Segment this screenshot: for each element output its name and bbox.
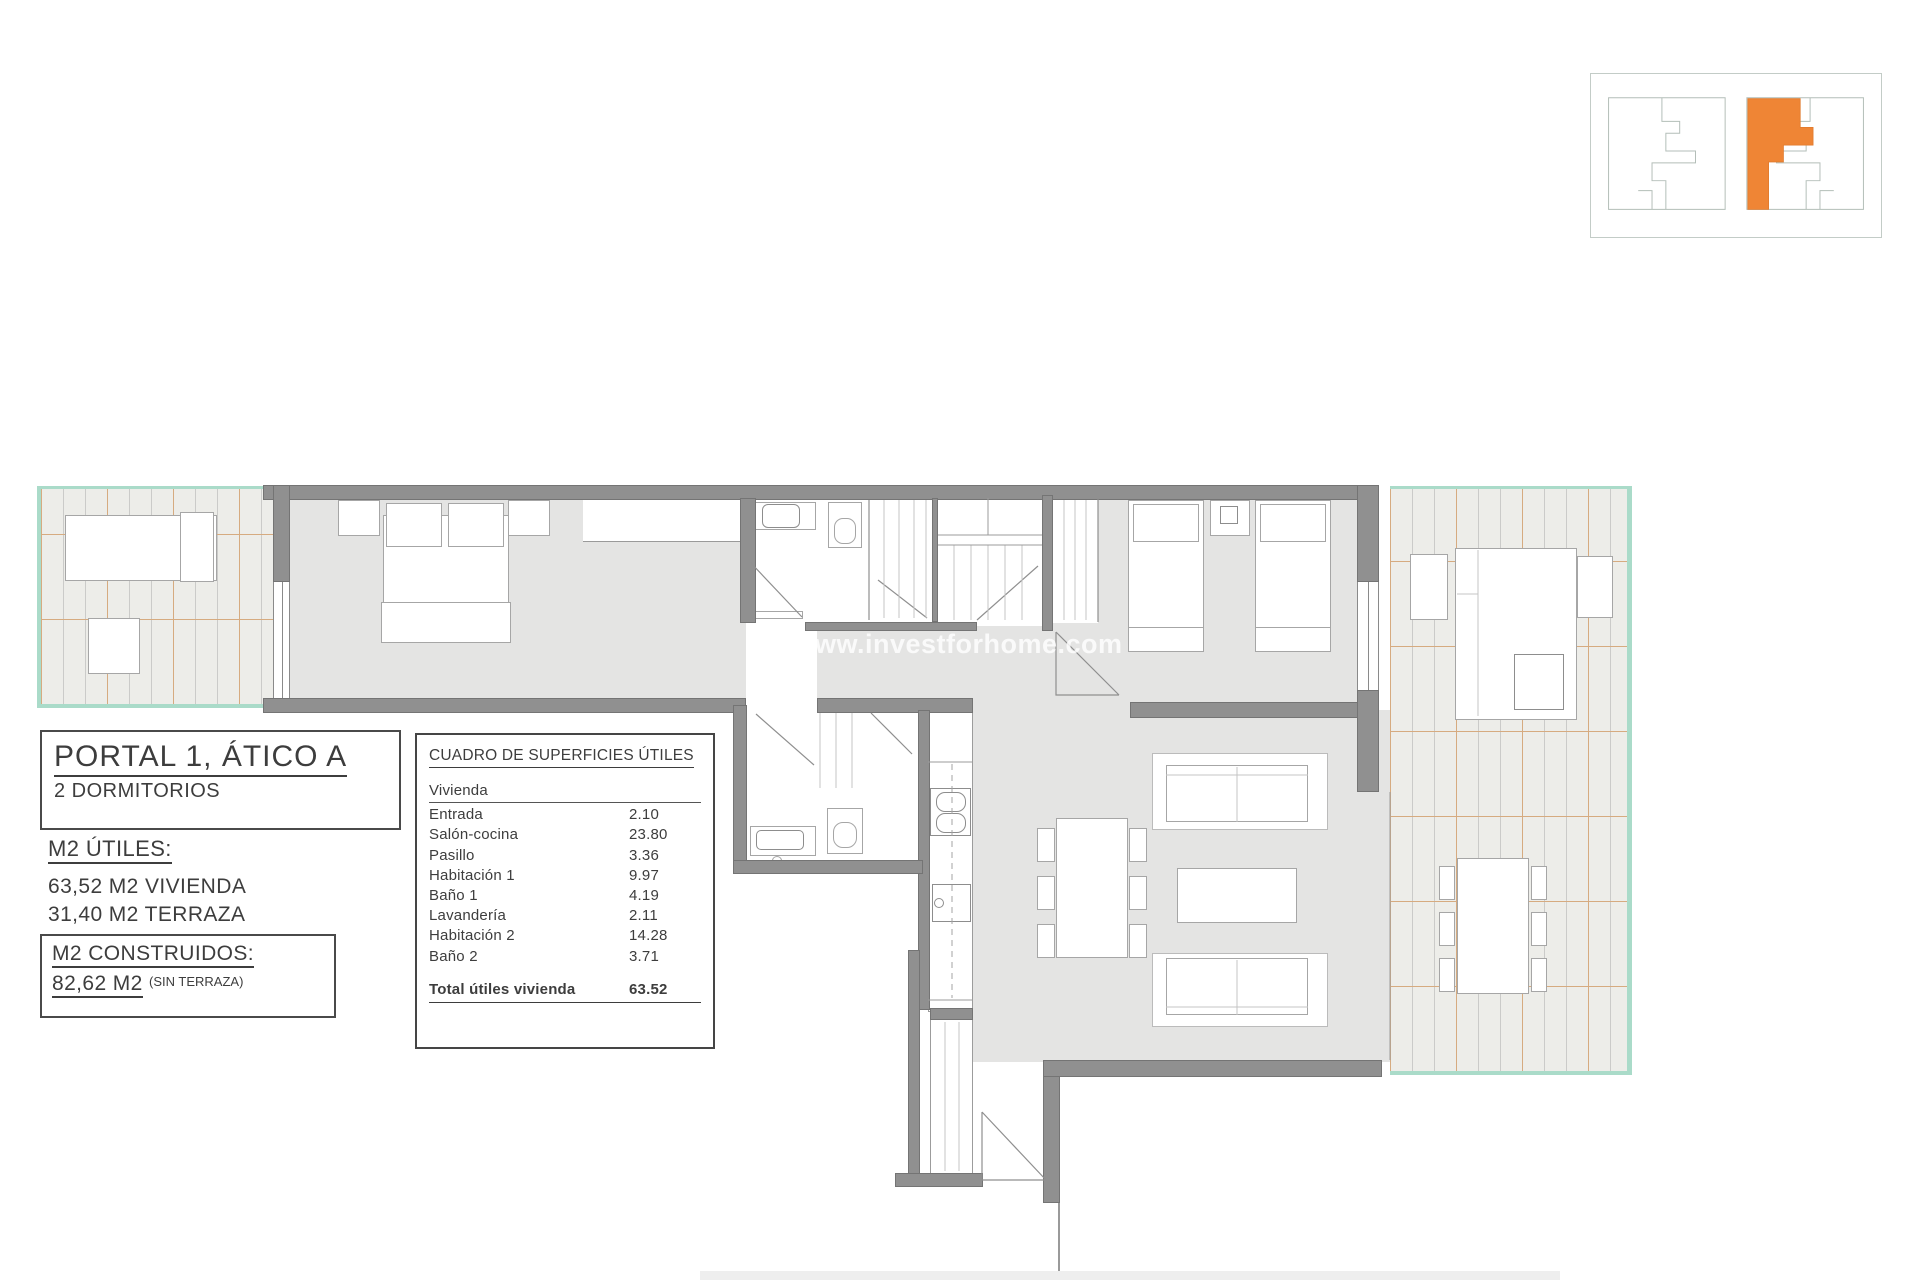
useful-area-block: M2 ÚTILES: 63,52 M2 VIVIENDA 31,40 M2 TE… bbox=[48, 836, 246, 927]
floorplan-page: { "watermark": { "text": "www.investforh… bbox=[0, 0, 1920, 1280]
lounger-pillow bbox=[180, 512, 214, 582]
plan-title: PORTAL 1, ÁTICO A bbox=[54, 740, 347, 777]
row-label: Baño 1 bbox=[429, 887, 629, 904]
outdoor-cushion bbox=[1577, 556, 1613, 618]
wall bbox=[1130, 702, 1379, 718]
bed-pillow bbox=[1260, 504, 1326, 542]
wall bbox=[740, 498, 756, 623]
table-row: Entrada 2.10 bbox=[429, 806, 701, 823]
row-label: Pasillo bbox=[429, 847, 629, 864]
cooktop-knob bbox=[934, 898, 944, 908]
outdoor-chair bbox=[1531, 958, 1547, 992]
coffee-table bbox=[1177, 868, 1297, 923]
keyplan bbox=[1590, 73, 1882, 238]
terrace-side-table bbox=[88, 618, 140, 674]
wall bbox=[263, 698, 746, 713]
closet-bedroom-1 bbox=[1053, 498, 1098, 623]
row-label: Salón-cocina bbox=[429, 826, 629, 843]
outdoor-chair bbox=[1531, 912, 1547, 946]
utiles-line: 63,52 M2 VIVIENDA bbox=[48, 875, 246, 899]
bed-pillow bbox=[1133, 504, 1199, 542]
page-edge-strip bbox=[700, 1271, 1560, 1280]
dining-chair bbox=[1129, 876, 1147, 910]
bed-pillow bbox=[386, 503, 442, 547]
dining-table bbox=[1056, 818, 1128, 958]
built-area-block: M2 CONSTRUIDOS: 82,62 M2 (SIN TERRAZA) bbox=[40, 934, 336, 1018]
sink-bowl bbox=[756, 830, 804, 850]
row-label: Habitación 1 bbox=[429, 867, 629, 884]
dining-chair bbox=[1037, 924, 1055, 958]
kitchen-counter bbox=[928, 710, 973, 1012]
wall bbox=[263, 485, 1379, 500]
surface-table-rows: Entrada 2.10 Salón-cocina 23.80 Pasillo … bbox=[429, 806, 701, 964]
title-block: PORTAL 1, ÁTICO A 2 DORMITORIOS bbox=[40, 730, 401, 830]
table-row: Pasillo 3.36 bbox=[429, 847, 701, 864]
outdoor-lounge-table bbox=[1514, 654, 1564, 710]
surface-table: CUADRO DE SUPERFICIES ÚTILES Vivienda En… bbox=[415, 733, 715, 1049]
nightstand-lamp bbox=[1220, 506, 1238, 524]
table-row: Habitación 2 14.28 bbox=[429, 927, 701, 944]
outdoor-chair bbox=[1531, 866, 1547, 900]
construidos-value: 82,62 M2 bbox=[52, 972, 143, 998]
wall bbox=[1042, 495, 1053, 631]
plan-subtitle: 2 DORMITORIOS bbox=[54, 780, 387, 803]
toilet-bowl bbox=[833, 822, 857, 848]
laundry-stairs-room bbox=[938, 498, 1042, 624]
dining-chair bbox=[1037, 828, 1055, 862]
utiles-label: M2 ÚTILES: bbox=[48, 836, 172, 864]
row-value: 3.71 bbox=[629, 948, 701, 965]
utiles-line: 31,40 M2 TERRAZA bbox=[48, 903, 246, 927]
table-row: Habitación 1 9.97 bbox=[429, 867, 701, 884]
row-value: 23.80 bbox=[629, 826, 701, 843]
wall bbox=[930, 1008, 973, 1020]
outdoor-chair bbox=[1439, 912, 1455, 946]
construidos-label: M2 CONSTRUIDOS: bbox=[52, 942, 254, 968]
total-value: 63.52 bbox=[629, 981, 701, 998]
row-value: 2.11 bbox=[629, 907, 701, 924]
bed-pillow bbox=[448, 503, 504, 547]
sofa-cushions bbox=[1166, 958, 1308, 1015]
dining-chair bbox=[1129, 828, 1147, 862]
row-value: 2.10 bbox=[629, 806, 701, 823]
wall bbox=[817, 698, 973, 713]
window-terrace-left bbox=[273, 582, 290, 698]
window-terrace-right bbox=[1357, 582, 1379, 690]
table-row: Lavandería 2.11 bbox=[429, 907, 701, 924]
wall bbox=[1357, 485, 1379, 582]
sofa-cushions bbox=[1166, 765, 1308, 822]
bed-foot bbox=[1255, 627, 1331, 652]
bed-foot-bench bbox=[381, 602, 511, 643]
surface-table-total: Total útiles vivienda 63.52 bbox=[429, 981, 701, 1003]
surface-table-title: CUADRO DE SUPERFICIES ÚTILES bbox=[429, 747, 694, 768]
entry-stairs-shaft bbox=[930, 1020, 973, 1173]
door-leaf bbox=[750, 611, 803, 619]
wall bbox=[733, 705, 747, 874]
row-value: 9.97 bbox=[629, 867, 701, 884]
wall bbox=[1357, 690, 1379, 792]
toilet-bowl bbox=[834, 518, 856, 544]
row-label: Habitación 2 bbox=[429, 927, 629, 944]
dining-chair bbox=[1037, 876, 1055, 910]
bed-foot bbox=[1128, 627, 1204, 652]
total-label: Total útiles vivienda bbox=[429, 981, 629, 998]
outdoor-chair bbox=[1439, 958, 1455, 992]
row-label: Lavandería bbox=[429, 907, 629, 924]
nightstand bbox=[508, 500, 550, 536]
dining-chair bbox=[1129, 924, 1147, 958]
row-label: Baño 2 bbox=[429, 948, 629, 965]
watermark: www.investforhome.com bbox=[788, 629, 1128, 660]
construidos-note: (SIN TERRAZA) bbox=[149, 974, 243, 989]
sink-bowl bbox=[936, 813, 966, 833]
wall bbox=[1043, 1060, 1060, 1203]
wall bbox=[1043, 1060, 1382, 1077]
keyplan-drawing bbox=[1591, 74, 1881, 237]
nightstand bbox=[338, 500, 380, 536]
surface-table-section: Vivienda bbox=[429, 782, 701, 803]
closet-bedroom-2 bbox=[583, 495, 750, 542]
sink-bowl bbox=[936, 792, 966, 812]
wall bbox=[895, 1173, 983, 1187]
sink-bowl bbox=[762, 504, 800, 528]
wall bbox=[908, 950, 920, 1187]
table-row: Salón-cocina 23.80 bbox=[429, 826, 701, 843]
row-label: Entrada bbox=[429, 806, 629, 823]
table-row: Baño 1 4.19 bbox=[429, 887, 701, 904]
outdoor-chair bbox=[1439, 866, 1455, 900]
outdoor-armchair bbox=[1410, 554, 1448, 620]
table-row: Baño 2 3.71 bbox=[429, 948, 701, 965]
outdoor-dining-table bbox=[1457, 858, 1529, 994]
wall bbox=[932, 498, 938, 622]
row-value: 4.19 bbox=[629, 887, 701, 904]
row-value: 14.28 bbox=[629, 927, 701, 944]
wall bbox=[733, 860, 923, 874]
row-value: 3.36 bbox=[629, 847, 701, 864]
wall bbox=[273, 485, 290, 582]
